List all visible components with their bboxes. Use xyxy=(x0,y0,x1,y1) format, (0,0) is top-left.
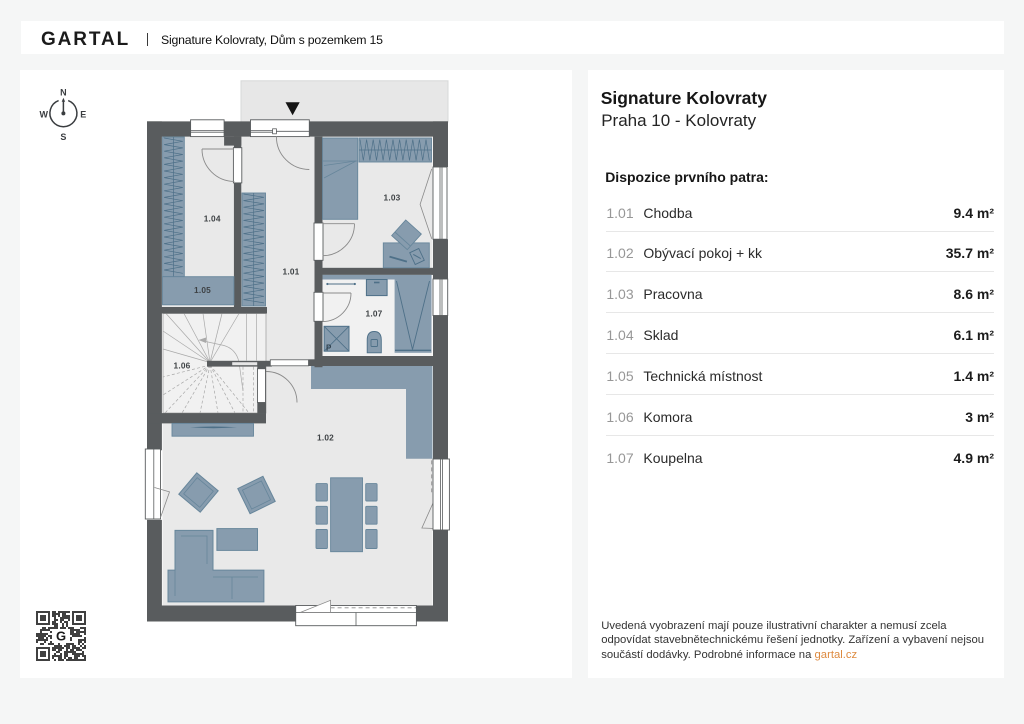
svg-text:1.07: 1.07 xyxy=(366,309,383,319)
svg-text:S: S xyxy=(60,132,66,142)
svg-text:1.01: 1.01 xyxy=(283,267,300,277)
svg-text:1.05: 1.05 xyxy=(194,285,211,295)
svg-text:E: E xyxy=(80,110,86,120)
svg-text:G: G xyxy=(56,629,66,644)
svg-text:P: P xyxy=(326,344,332,353)
svg-text:1.03: 1.03 xyxy=(384,193,401,203)
svg-text:1.04: 1.04 xyxy=(204,214,221,224)
svg-text:1.02: 1.02 xyxy=(317,433,334,443)
svg-text:N: N xyxy=(60,87,67,97)
svg-text:1.06: 1.06 xyxy=(174,361,191,371)
svg-text:W: W xyxy=(39,110,48,120)
